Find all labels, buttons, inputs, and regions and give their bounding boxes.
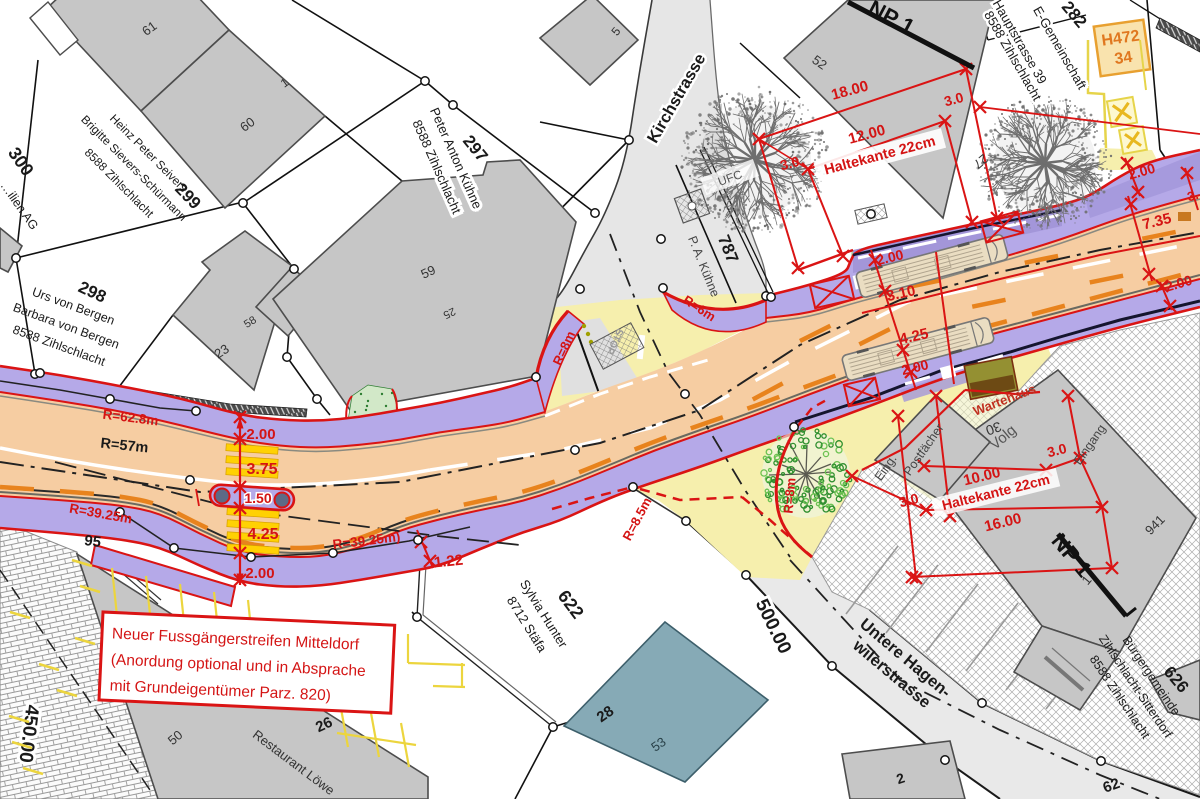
svg-text:1.50: 1.50 bbox=[244, 490, 271, 506]
svg-text:R=8m: R=8m bbox=[780, 477, 798, 514]
svg-text:95: 95 bbox=[83, 532, 102, 551]
svg-text:1.22: 1.22 bbox=[433, 552, 464, 572]
svg-text:2.00: 2.00 bbox=[246, 426, 275, 443]
svg-text:34: 34 bbox=[1113, 49, 1133, 68]
svg-text:2.00: 2.00 bbox=[245, 565, 274, 582]
svg-text:3.75: 3.75 bbox=[246, 461, 277, 478]
svg-text:4.25: 4.25 bbox=[247, 526, 278, 543]
